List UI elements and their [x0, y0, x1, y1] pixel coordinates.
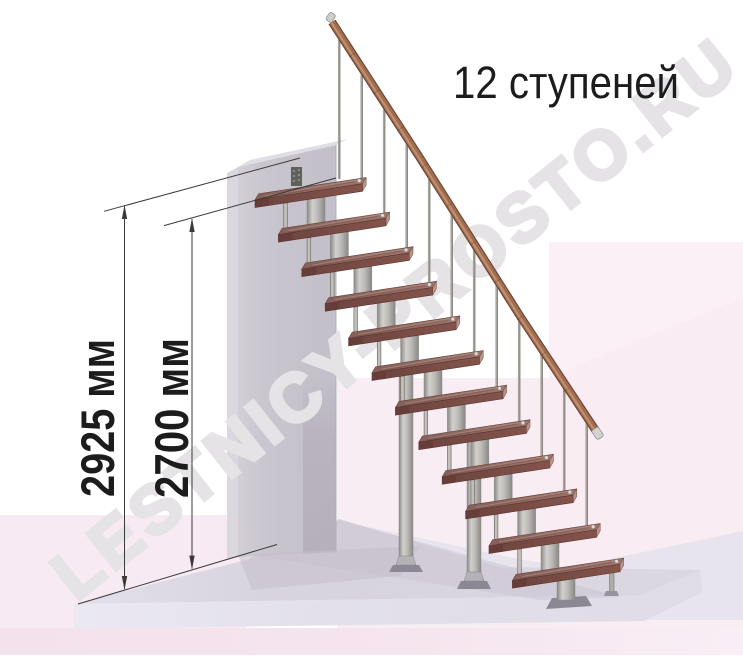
svg-text:2700 мм: 2700 мм: [145, 338, 198, 498]
svg-text:12 ступеней: 12 ступеней: [453, 57, 679, 108]
svg-text:2925 мм: 2925 мм: [71, 339, 124, 497]
